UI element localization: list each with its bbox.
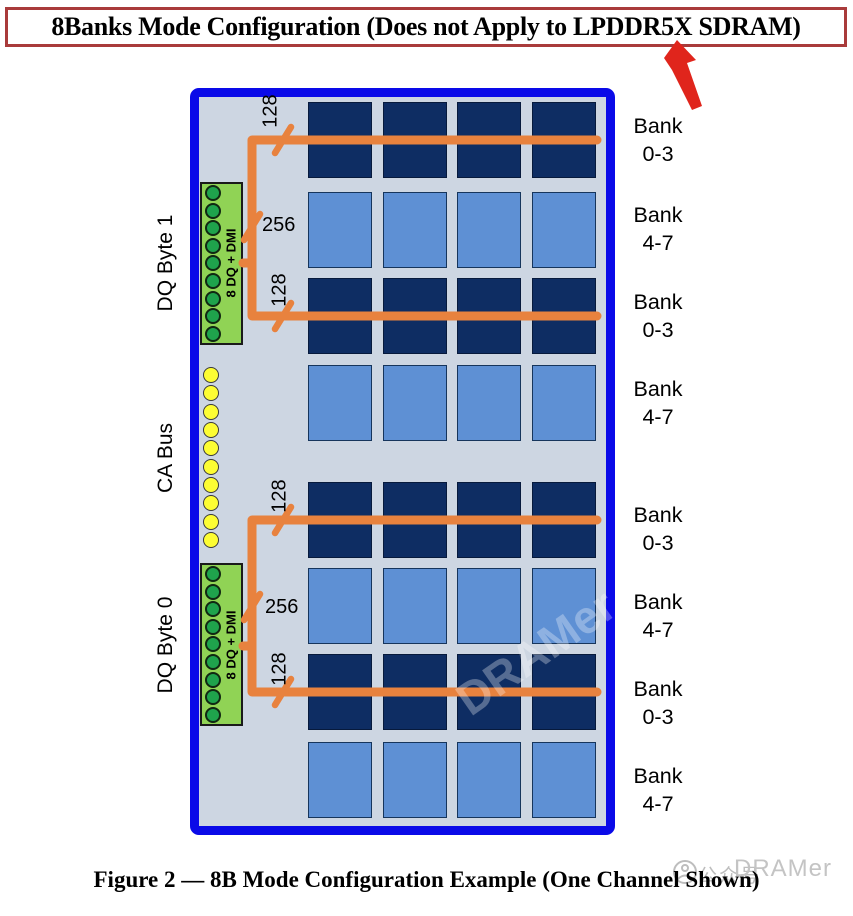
bank-row-label-line: Bank xyxy=(616,201,700,229)
bank-block-r2-c0 xyxy=(308,278,372,354)
bank-block-r3-c0 xyxy=(308,365,372,441)
bank-block-r1-c1 xyxy=(383,192,447,268)
dq-pin xyxy=(205,326,221,342)
bank-row-label-1: Bank4-7 xyxy=(616,201,700,257)
dq-pin xyxy=(205,584,221,600)
bank-row-label-line: Bank xyxy=(616,675,700,703)
dq-pin xyxy=(205,636,221,652)
bank-block-r5-c1 xyxy=(383,568,447,644)
bank-block-r2-c2 xyxy=(457,278,521,354)
bus-width-label-128-row3: 128 xyxy=(269,273,292,306)
bank-row-label-line: Bank xyxy=(616,762,700,790)
bank-block-r0-c1 xyxy=(383,102,447,178)
dq-pin xyxy=(205,619,221,635)
side-label-ca-bus: CA Bus xyxy=(154,423,178,493)
bank-block-r4-c0 xyxy=(308,482,372,558)
dq-pin xyxy=(205,566,221,582)
dq-pin xyxy=(205,601,221,617)
bank-row-label-line: 4-7 xyxy=(616,616,700,644)
bank-block-r3-c3 xyxy=(532,365,596,441)
bank-block-r0-c3 xyxy=(532,102,596,178)
ca-pin xyxy=(203,459,219,475)
bank-row-label-line: 0-3 xyxy=(616,140,700,168)
dq-pin xyxy=(205,185,221,201)
bank-row-label-line: 0-3 xyxy=(616,316,700,344)
bank-row-label-3: Bank4-7 xyxy=(616,375,700,431)
bank-block-r5-c2 xyxy=(457,568,521,644)
bank-block-r2-c3 xyxy=(532,278,596,354)
dq-pin xyxy=(205,238,221,254)
bank-block-r0-c2 xyxy=(457,102,521,178)
bank-block-r4-c3 xyxy=(532,482,596,558)
bank-block-r1-c2 xyxy=(457,192,521,268)
figure-caption: Figure 2 — 8B Mode Configuration Example… xyxy=(0,867,853,893)
dq-pin xyxy=(205,273,221,289)
bus-width-label-128-row5: 128 xyxy=(269,479,292,512)
bank-block-r0-c0 xyxy=(308,102,372,178)
dq-pin xyxy=(205,220,221,236)
bus-width-label-128-top: 128 xyxy=(260,94,283,127)
bank-row-label-line: 4-7 xyxy=(616,229,700,257)
bank-block-r3-c2 xyxy=(457,365,521,441)
ca-pin xyxy=(203,367,219,383)
bank-row-label-line: Bank xyxy=(616,375,700,403)
bank-row-label-7: Bank4-7 xyxy=(616,762,700,818)
dq-pin xyxy=(205,203,221,219)
bank-row-label-line: 4-7 xyxy=(616,403,700,431)
bank-block-r7-c2 xyxy=(457,742,521,818)
bank-row-label-4: Bank0-3 xyxy=(616,501,700,557)
side-label-dq-byte-1: DQ Byte 1 xyxy=(154,215,178,312)
bank-block-r1-c0 xyxy=(308,192,372,268)
ca-pin xyxy=(203,422,219,438)
bank-block-r6-c1 xyxy=(383,654,447,730)
dq-pin xyxy=(205,689,221,705)
dq-byte0-connector-label: 8 DQ + DMI xyxy=(224,611,239,680)
bank-block-r4-c2 xyxy=(457,482,521,558)
bank-block-r6-c0 xyxy=(308,654,372,730)
side-label-dq-byte-0: DQ Byte 0 xyxy=(154,597,178,694)
dq-byte1-connector-label: 8 DQ + DMI xyxy=(224,229,239,298)
bank-block-r4-c1 xyxy=(383,482,447,558)
bank-row-label-line: Bank xyxy=(616,501,700,529)
dq-pin xyxy=(205,291,221,307)
dq-pin xyxy=(205,308,221,324)
figure-page: 8Banks Mode Configuration (Does not Appl… xyxy=(0,0,853,916)
figure-title: 8Banks Mode Configuration (Does not Appl… xyxy=(5,7,847,47)
dq-pin xyxy=(205,672,221,688)
bank-block-r7-c3 xyxy=(532,742,596,818)
ca-pin xyxy=(203,477,219,493)
bank-row-label-0: Bank0-3 xyxy=(616,112,700,168)
bank-block-r2-c1 xyxy=(383,278,447,354)
bank-block-r7-c1 xyxy=(383,742,447,818)
bank-row-label-line: Bank xyxy=(616,288,700,316)
bank-row-label-6: Bank0-3 xyxy=(616,675,700,731)
bank-block-r5-c0 xyxy=(308,568,372,644)
bank-row-label-2: Bank0-3 xyxy=(616,288,700,344)
bank-row-label-line: 4-7 xyxy=(616,790,700,818)
dq-pin xyxy=(205,255,221,271)
bus-width-label-256-byte0: 256 xyxy=(265,596,298,619)
bus-width-label-128-row7: 128 xyxy=(269,652,292,685)
ca-pin xyxy=(203,404,219,420)
dq-pin xyxy=(205,707,221,723)
bank-block-r7-c0 xyxy=(308,742,372,818)
bank-row-label-5: Bank4-7 xyxy=(616,588,700,644)
dq-pin xyxy=(205,654,221,670)
bank-block-r3-c1 xyxy=(383,365,447,441)
ca-pin xyxy=(203,514,219,530)
ca-pin xyxy=(203,532,219,548)
bank-row-label-line: 0-3 xyxy=(616,529,700,557)
annotation-arrow-icon xyxy=(664,40,702,110)
bank-row-label-line: Bank xyxy=(616,588,700,616)
bank-row-label-line: 0-3 xyxy=(616,703,700,731)
bank-row-label-line: Bank xyxy=(616,112,700,140)
bus-width-label-256-byte1: 256 xyxy=(262,214,295,237)
bank-block-r1-c3 xyxy=(532,192,596,268)
